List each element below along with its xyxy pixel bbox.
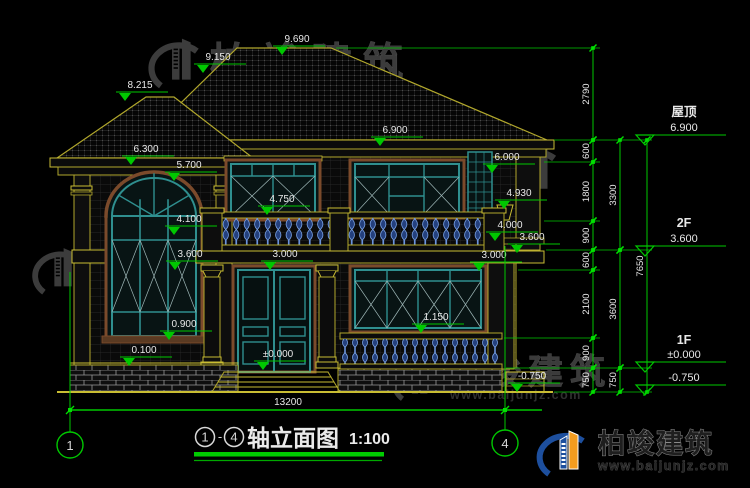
svg-text:3300: 3300 — [608, 184, 619, 205]
svg-text:750: 750 — [608, 372, 619, 388]
svg-text:9.150: 9.150 — [205, 52, 230, 63]
title-axis-separator: - — [218, 429, 222, 444]
svg-text:3600: 3600 — [608, 298, 619, 319]
svg-text:6.900: 6.900 — [382, 125, 407, 136]
svg-text:6.900: 6.900 — [670, 122, 698, 134]
second-floor-center-window — [224, 156, 322, 220]
svg-text:±0.000: ±0.000 — [263, 349, 294, 360]
svg-text:3.600: 3.600 — [519, 232, 544, 243]
svg-text:2F: 2F — [677, 216, 692, 230]
svg-text:-0.750: -0.750 — [668, 372, 699, 384]
title-underline-thick — [194, 452, 384, 457]
drawing-title: 轴立面图 — [247, 425, 339, 451]
cad-canvas: 柏竣建筑www.baijunjz.com柏竣建筑www.baijunjz.com… — [0, 0, 750, 488]
svg-text:3.600: 3.600 — [177, 249, 202, 260]
overall-width-dim: 13200 — [274, 397, 302, 408]
logo-tower-orange — [569, 431, 578, 469]
svg-text:9.690: 9.690 — [284, 34, 309, 45]
footer-brand-name: 柏竣建筑 — [598, 428, 714, 459]
svg-text:4.930: 4.930 — [506, 188, 531, 199]
footer-brand-url: www.baijunjz.com — [597, 459, 730, 473]
svg-text:0.100: 0.100 — [131, 345, 156, 356]
svg-text:600: 600 — [581, 252, 592, 268]
svg-text:2100: 2100 — [581, 293, 592, 314]
svg-text:1.150: 1.150 — [423, 312, 448, 323]
svg-text:5.700: 5.700 — [176, 160, 201, 171]
svg-text:2790: 2790 — [581, 83, 592, 104]
svg-text:±0.000: ±0.000 — [667, 349, 701, 361]
svg-text:4.000: 4.000 — [497, 220, 522, 231]
svg-text:1F: 1F — [677, 333, 692, 347]
left-wing-base — [70, 363, 238, 392]
window-sill — [102, 336, 206, 343]
svg-text:0.900: 0.900 — [171, 319, 196, 330]
axis-bubble-4-label: 4 — [501, 436, 508, 451]
svg-text:6.000: 6.000 — [494, 152, 519, 163]
first-floor-right-window — [350, 266, 486, 332]
svg-text:3.000: 3.000 — [272, 249, 297, 260]
svg-text:3.000: 3.000 — [481, 250, 506, 261]
svg-text:750: 750 — [581, 372, 592, 388]
svg-text:4.750: 4.750 — [269, 194, 294, 205]
title-axis-start: 1 — [201, 430, 208, 445]
svg-text:-0.750: -0.750 — [518, 371, 547, 382]
svg-text:600: 600 — [581, 143, 592, 159]
svg-text:1800: 1800 — [581, 181, 592, 202]
svg-text:8.215: 8.215 — [127, 80, 152, 91]
title-axis-end: 4 — [230, 430, 237, 445]
drawing-scale: 1:100 — [349, 431, 390, 448]
svg-text:3.600: 3.600 — [670, 233, 698, 245]
elevation-drawing: 柏竣建筑www.baijunjz.com柏竣建筑www.baijunjz.com… — [0, 0, 750, 488]
svg-text:6.300: 6.300 — [133, 144, 158, 155]
svg-text:屋顶: 屋顶 — [671, 104, 697, 119]
svg-text:4.100: 4.100 — [176, 214, 201, 225]
second-floor-right-window — [350, 160, 464, 218]
porch-brick-base — [338, 369, 502, 392]
svg-text:7650: 7650 — [635, 255, 646, 276]
svg-text:900: 900 — [581, 228, 592, 244]
svg-text:900: 900 — [581, 345, 592, 361]
axis-bubble-1-label: 1 — [66, 438, 73, 453]
